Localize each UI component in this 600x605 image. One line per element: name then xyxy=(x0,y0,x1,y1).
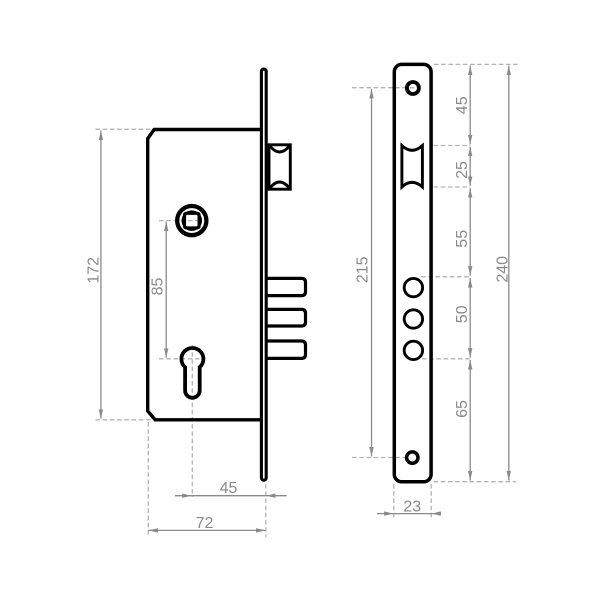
svg-text:45: 45 xyxy=(220,480,238,497)
svg-text:240: 240 xyxy=(494,256,511,283)
svg-text:72: 72 xyxy=(196,515,214,532)
svg-text:25: 25 xyxy=(454,161,471,179)
svg-text:85: 85 xyxy=(150,278,167,296)
svg-text:215: 215 xyxy=(354,256,371,283)
svg-text:23: 23 xyxy=(403,499,421,516)
svg-text:50: 50 xyxy=(454,305,471,323)
svg-text:172: 172 xyxy=(85,257,102,284)
svg-text:45: 45 xyxy=(454,96,471,114)
svg-text:65: 65 xyxy=(454,400,471,418)
svg-text:55: 55 xyxy=(454,230,471,248)
